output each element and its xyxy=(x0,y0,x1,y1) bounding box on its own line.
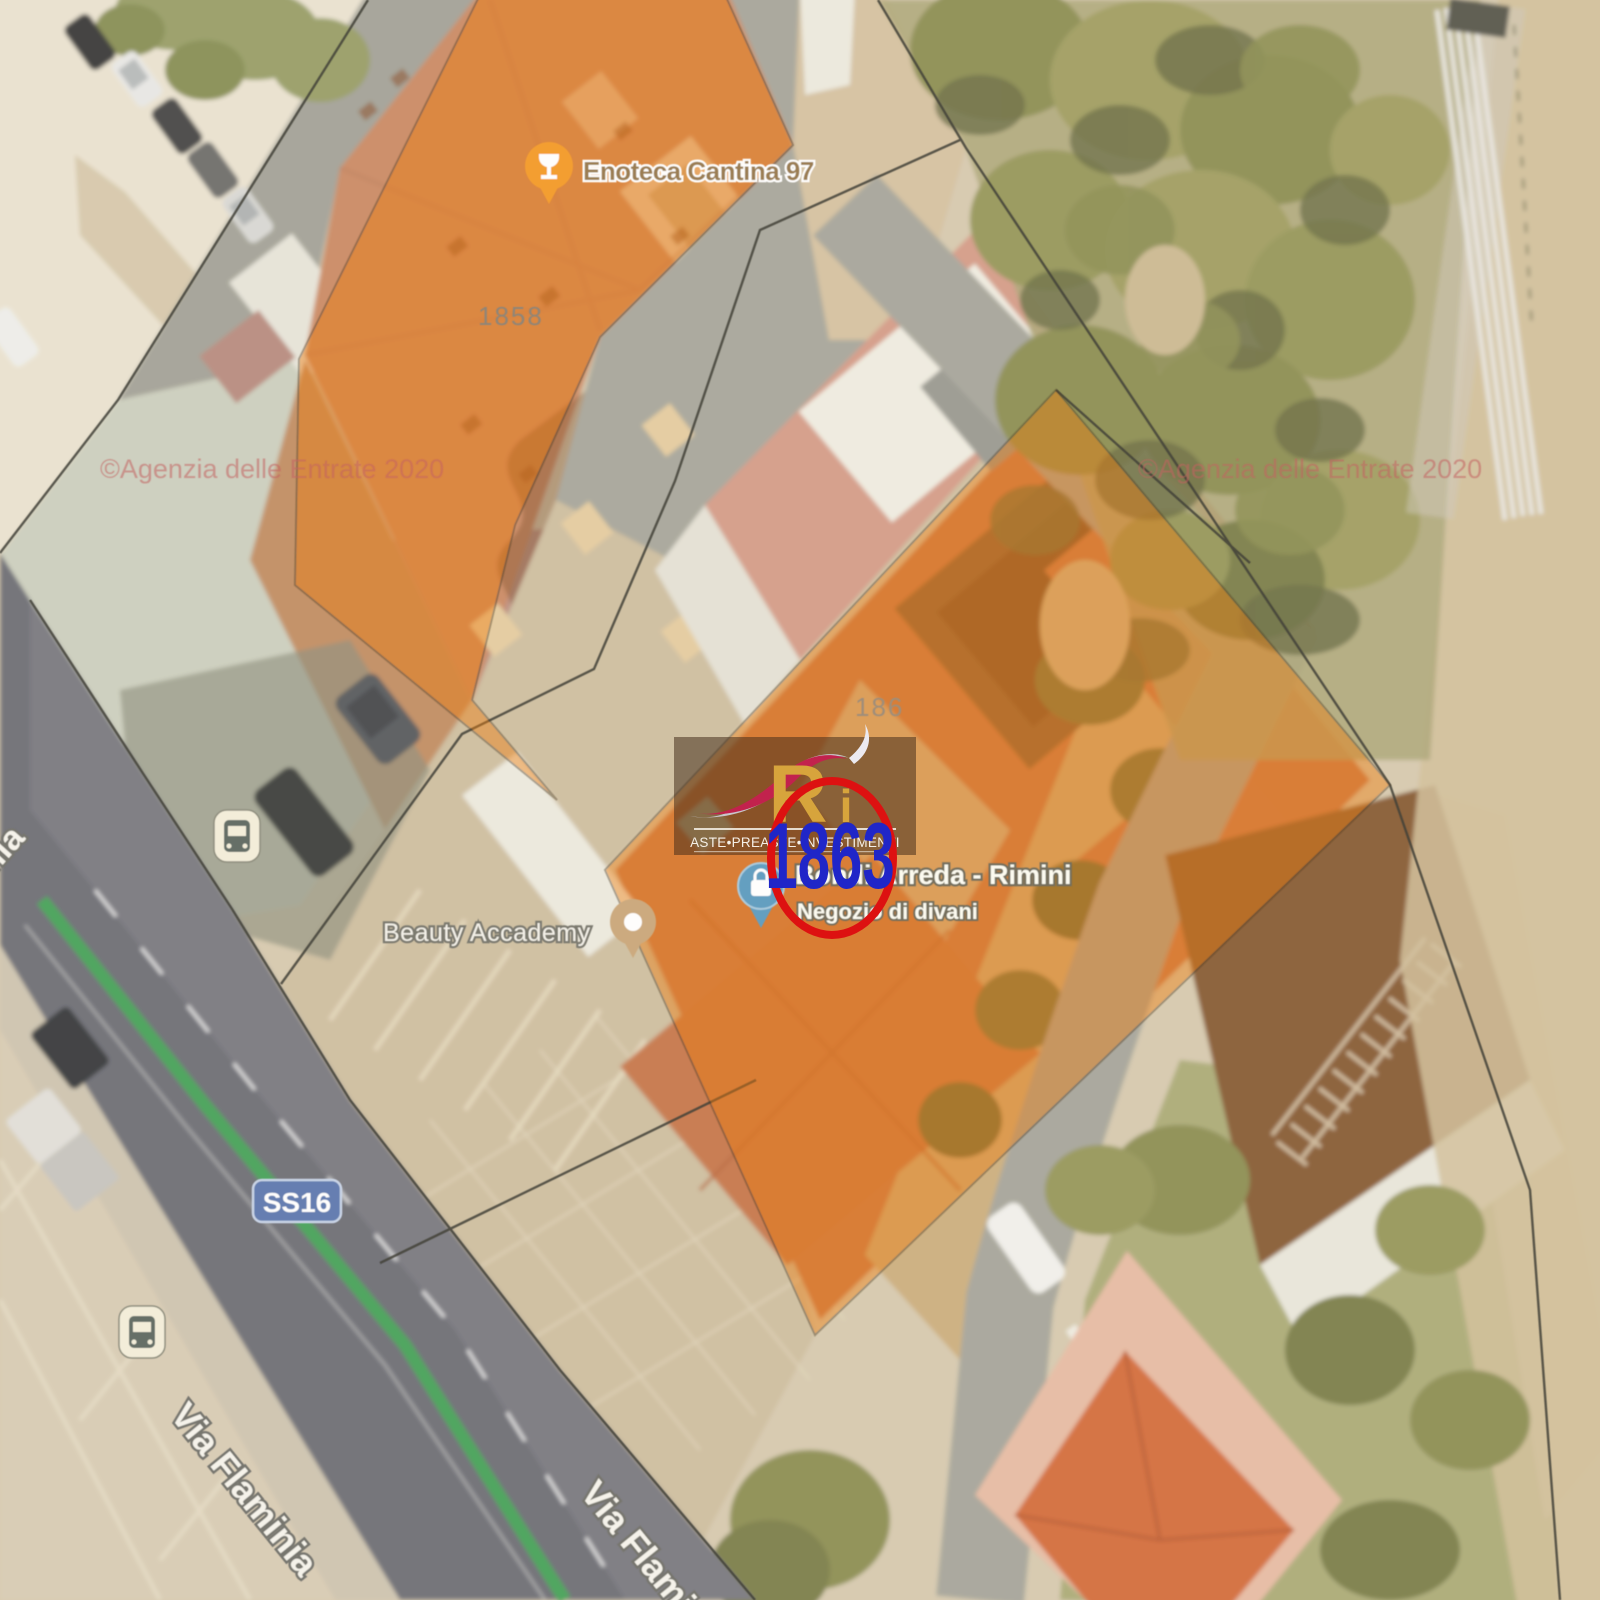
svg-text:1863: 1863 xyxy=(765,803,895,909)
